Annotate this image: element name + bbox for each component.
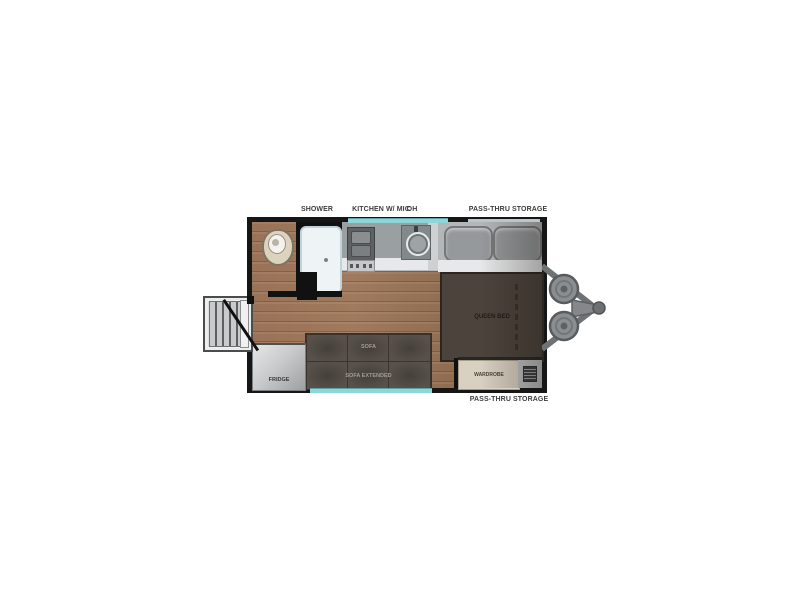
- queen-bed: QUEEN BED: [440, 272, 544, 362]
- door-frame: [247, 296, 254, 304]
- kitchen-label: KITCHEN W/ MIC: [352, 206, 410, 213]
- wardrobe-label: WARDROBE: [474, 373, 504, 378]
- pillow-left-icon: [444, 226, 493, 262]
- kitchen-sink: [401, 225, 431, 260]
- bathroom-partition-wall: [268, 291, 342, 297]
- water-heater-icon: [523, 366, 537, 382]
- overhead-label: OH: [407, 206, 418, 213]
- floorplan-image: SHOWER KITCHEN W/ MIC OH PASS-THRU STORA…: [0, 0, 800, 600]
- pillow-right-icon: [493, 226, 542, 262]
- kitchen-window: [348, 218, 448, 223]
- toilet-flush: [272, 239, 279, 246]
- pass-thru-storage-bottom-label: PASS-THRU STORAGE: [470, 396, 548, 403]
- bed-sheet-strip: [438, 260, 542, 272]
- fridge-label: FRIDGE: [269, 378, 290, 384]
- range-top: [351, 231, 371, 244]
- range-stove-icon: [347, 227, 375, 261]
- step-slats: [209, 301, 241, 347]
- bed-window: [468, 219, 540, 222]
- trailer-hitch: [542, 256, 606, 360]
- hitch-ball-icon: [593, 302, 605, 314]
- shower-label: SHOWER: [301, 206, 333, 213]
- propane-tank-valve: [561, 323, 568, 330]
- sink-bowl-icon: [406, 232, 430, 256]
- sofa-label: SOFA: [306, 345, 431, 351]
- sofa-extended-label: SOFA EXTENDED: [306, 374, 431, 380]
- sofa: SOFA SOFA EXTENDED: [305, 333, 432, 390]
- appliance-box: [518, 360, 542, 388]
- pass-thru-storage-top-label: PASS-THRU STORAGE: [469, 206, 547, 213]
- propane-tank-valve: [561, 286, 568, 293]
- sofa-window: [310, 388, 432, 393]
- fridge: FRIDGE: [252, 343, 306, 391]
- range-knobs: [347, 260, 375, 272]
- toilet-icon: [262, 229, 294, 266]
- shower-drain-icon: [324, 258, 328, 262]
- bed-side-marking: [515, 284, 518, 350]
- queen-bed-label: QUEEN BED: [474, 314, 510, 321]
- wardrobe: WARDROBE: [458, 360, 520, 390]
- trailer-outline: QUEEN BED WARDROBE SOFA SOFA EXTENDED FR…: [247, 217, 547, 393]
- range-door: [351, 245, 371, 257]
